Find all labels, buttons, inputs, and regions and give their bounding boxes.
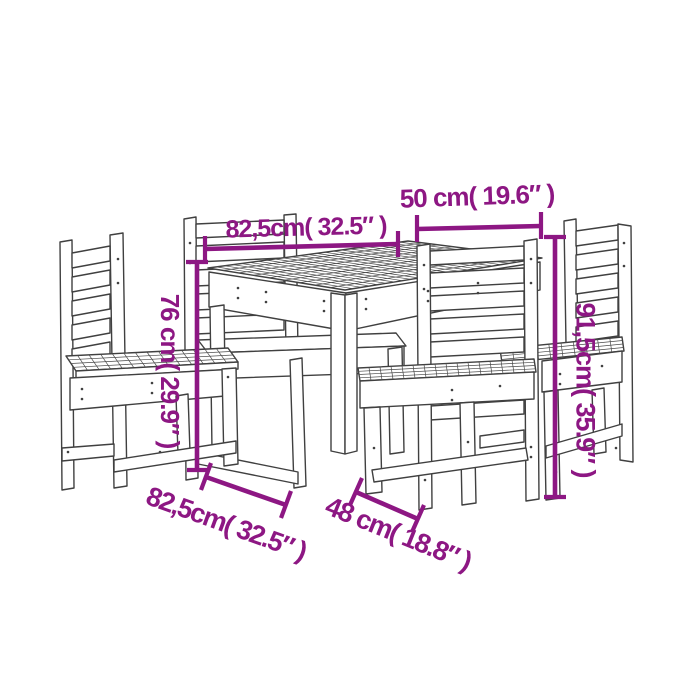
chair-width-dimension-line bbox=[417, 226, 541, 229]
chair-width-label: 50 cm( 19.6″ ) bbox=[399, 180, 554, 211]
diagram-canvas: 82,5cm( 32.5″ ) 50 cm( 19.6″ ) 76 cm( 29… bbox=[0, 0, 700, 700]
table-height-label: 76 cm( 29.9″ ) bbox=[157, 294, 183, 449]
chair-height-label: 91,5cm( 35.9″ ) bbox=[572, 302, 599, 477]
table-width-label: 82,5cm( 32.5″ ) bbox=[225, 213, 387, 242]
table-depth-dimension-line bbox=[206, 477, 286, 505]
